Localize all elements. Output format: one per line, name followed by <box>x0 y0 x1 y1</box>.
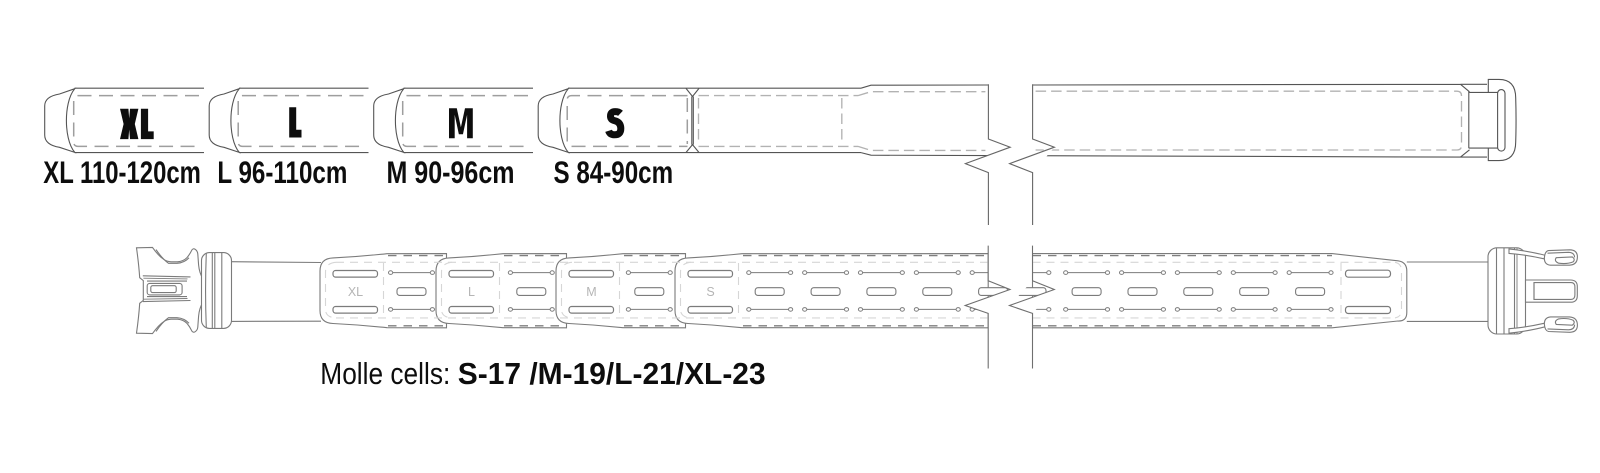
svg-text:S-17 /M-19/L-21/XL-23: S-17 /M-19/L-21/XL-23 <box>458 356 766 391</box>
svg-text:Molle cells:: Molle cells: <box>320 356 450 391</box>
svg-text:XL 110-120cm: XL 110-120cm <box>43 154 201 190</box>
svg-text:L: L <box>468 285 475 299</box>
svg-text:M: M <box>586 285 596 299</box>
svg-text:S: S <box>706 285 714 299</box>
svg-text:XL: XL <box>348 285 363 299</box>
svg-text:M 90-96cm: M 90-96cm <box>387 154 515 190</box>
svg-text:S 84-90cm: S 84-90cm <box>554 154 674 190</box>
svg-text:L 96-110cm: L 96-110cm <box>217 154 347 190</box>
